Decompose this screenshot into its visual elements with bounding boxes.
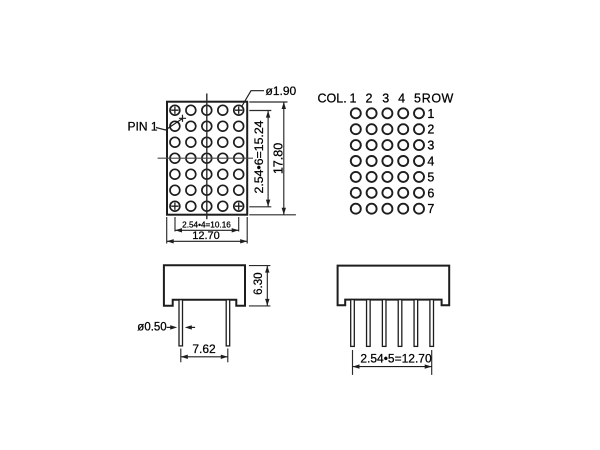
svg-text:5: 5 <box>427 170 434 184</box>
svg-text:PIN 1: PIN 1 <box>128 120 158 134</box>
svg-text:COL.: COL. <box>318 92 347 106</box>
svg-text:ø0.50: ø0.50 <box>137 322 166 334</box>
svg-text:1: 1 <box>427 107 434 121</box>
svg-text:4: 4 <box>398 92 405 106</box>
svg-text:7.62: 7.62 <box>192 342 216 356</box>
svg-text:ROW: ROW <box>422 92 454 106</box>
svg-text:ø1.90: ø1.90 <box>266 84 297 98</box>
svg-text:12.70: 12.70 <box>192 230 220 242</box>
svg-text:6: 6 <box>427 186 434 200</box>
svg-text:2.54•6=15.24: 2.54•6=15.24 <box>252 120 266 193</box>
svg-text:2: 2 <box>366 92 373 106</box>
svg-text:2: 2 <box>427 123 434 137</box>
svg-text:6.30: 6.30 <box>253 273 265 295</box>
svg-text:2.54•5=12.70: 2.54•5=12.70 <box>360 352 432 366</box>
svg-text:17.80: 17.80 <box>271 143 285 174</box>
svg-text:5: 5 <box>414 92 421 106</box>
svg-text:3: 3 <box>382 92 389 106</box>
svg-text:3: 3 <box>427 139 434 153</box>
svg-text:7: 7 <box>427 202 434 216</box>
svg-text:1: 1 <box>350 92 357 106</box>
svg-text:4: 4 <box>427 155 434 169</box>
svg-text:2.54•4=10.16: 2.54•4=10.16 <box>182 221 231 230</box>
